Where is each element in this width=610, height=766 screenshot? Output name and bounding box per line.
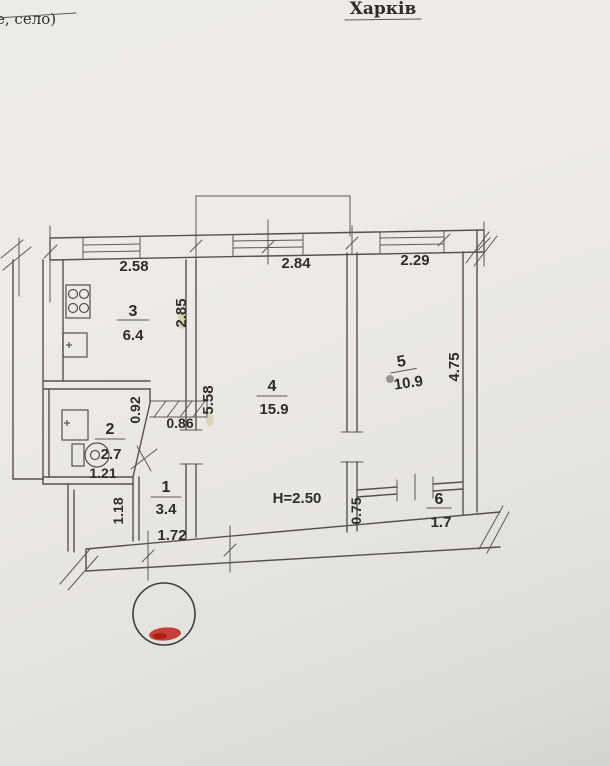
- room-4-number: 4: [268, 378, 277, 395]
- room-3-area: 6.4: [123, 327, 145, 344]
- dim-bedroom-depth: 4.75: [446, 352, 463, 381]
- dim-lobby-width: 0.86: [166, 415, 193, 431]
- bedroom-window-icon: [380, 231, 444, 255]
- room-2-area: 2.7: [101, 446, 122, 463]
- yellow-stain-2: [206, 414, 214, 426]
- dim-top-kitchen: 2.58: [119, 258, 148, 275]
- bath-sink-icon: [62, 410, 88, 440]
- hall-walls: [68, 477, 139, 552]
- right-wall: [463, 230, 477, 514]
- room-2-number: 2: [106, 421, 115, 438]
- stove-icon: [66, 285, 90, 318]
- bedroom-closet-wall: [357, 474, 463, 501]
- ceiling-height-label: H=2.50: [273, 490, 322, 507]
- dim-lobby-depth: 0.92: [127, 396, 143, 423]
- left-wall: [13, 260, 63, 484]
- page-title: Харків: [345, 0, 421, 20]
- room-1-area: 3.4: [156, 501, 178, 518]
- room-5-label: 5 10.9: [388, 351, 424, 394]
- title-underline: [345, 19, 421, 20]
- stamp: [133, 583, 195, 645]
- room-5-number: 5: [396, 353, 407, 371]
- room-6-label: 6 1.7: [427, 491, 451, 531]
- wall-break-top-left: [1, 238, 31, 296]
- room-5-area: 10.9: [393, 373, 424, 394]
- wall-break-top-right: [466, 232, 497, 266]
- room-3-label: 3 6.4: [117, 303, 149, 344]
- dim-top-bedroom: 2.29: [400, 252, 429, 269]
- room-1-label: 1 3.4: [151, 479, 181, 518]
- corner-note: е, село): [0, 10, 76, 28]
- page-title-text: Харків: [350, 0, 417, 19]
- dim-closet-depth: 0.75: [348, 497, 364, 524]
- room-3-number: 3: [129, 303, 138, 320]
- dim-living-depth: 5.58: [200, 385, 217, 414]
- room-4-label: 4 15.9: [257, 378, 289, 418]
- wall-break-bottom-left: [60, 549, 98, 590]
- dim-hall-width: 1.72: [157, 527, 186, 544]
- dim-hall-depth: 1.18: [110, 497, 126, 524]
- room-6-number: 6: [435, 491, 444, 508]
- dim-kitchen-depth: 2.85: [173, 298, 190, 327]
- dim-bath-width: 1.21: [89, 465, 116, 481]
- room-1-number: 1: [162, 479, 171, 496]
- room-6-area: 1.7: [431, 514, 452, 531]
- red-stamp-mark-core: [153, 633, 167, 639]
- kitchen-window-icon: [83, 237, 140, 260]
- corner-note-text: е, село): [0, 10, 56, 28]
- balcony-outline: [196, 196, 350, 238]
- bottom-dimension-ticks: [142, 526, 236, 580]
- room-4-area: 15.9: [259, 401, 288, 418]
- dim-top-living: 2.84: [281, 255, 311, 272]
- scanned-floorplan-page: е, село) Харків: [0, 0, 610, 766]
- floor-plan-drawing: е, село) Харків: [0, 0, 610, 766]
- kitchen-sink-icon: [63, 333, 87, 357]
